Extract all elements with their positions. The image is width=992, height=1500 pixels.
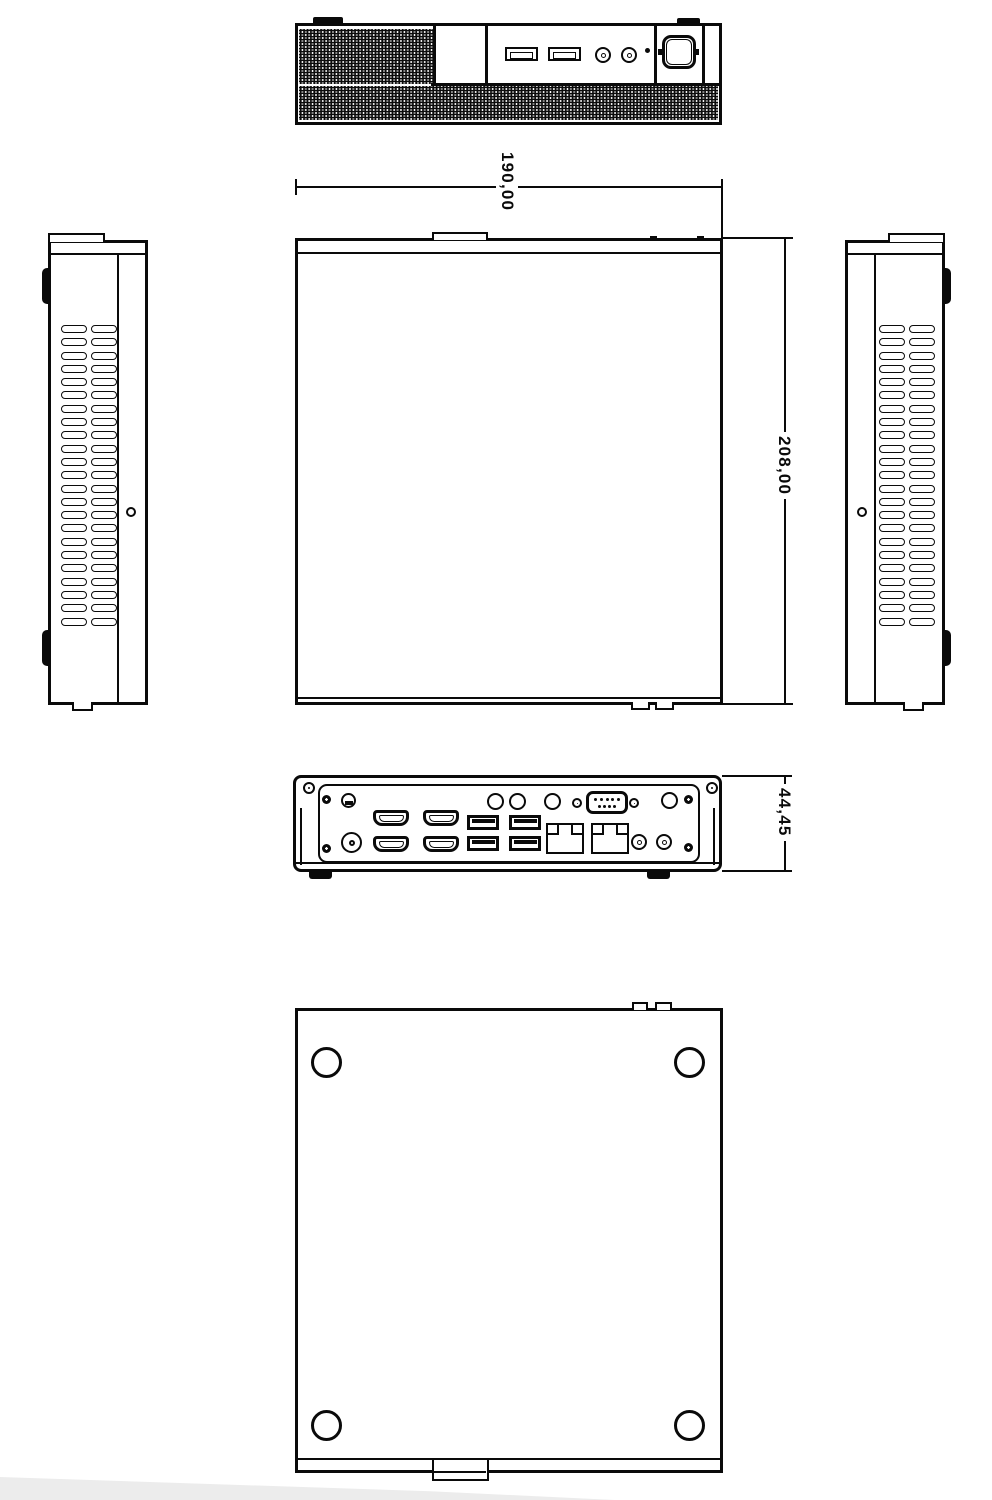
bottom-view xyxy=(295,1008,723,1473)
vent-slot xyxy=(61,618,87,626)
lock-slot xyxy=(341,793,356,808)
extension-line xyxy=(721,186,723,238)
vent-slot xyxy=(61,325,87,333)
inner-wall-line xyxy=(300,808,302,865)
vent-slot xyxy=(909,511,935,519)
front-divider xyxy=(654,26,657,84)
vent-slot xyxy=(91,591,117,599)
power-button xyxy=(662,35,696,69)
vent-slot xyxy=(91,325,117,333)
vent-slot xyxy=(91,524,117,532)
vent-slot xyxy=(61,578,87,586)
vent-slot xyxy=(909,365,935,373)
vent-slot xyxy=(879,471,905,479)
vent-slot xyxy=(61,365,87,373)
vent-slot xyxy=(61,391,87,399)
vent-slot xyxy=(61,551,87,559)
mount-hole xyxy=(674,1410,705,1441)
mount-hole xyxy=(311,1410,342,1441)
vent-slot xyxy=(61,485,87,493)
rj45-lan-port xyxy=(546,823,584,854)
vent-slot xyxy=(91,538,117,546)
mount-hole xyxy=(674,1047,705,1078)
vent-slot xyxy=(909,405,935,413)
vent-slot xyxy=(909,352,935,360)
plate-screw xyxy=(684,795,693,804)
db9-pin xyxy=(598,805,601,808)
front-blank-panel xyxy=(433,26,488,84)
antenna-hole xyxy=(544,793,561,810)
vent-slot xyxy=(879,578,905,586)
vent-slot xyxy=(91,431,117,439)
dimension-tick xyxy=(295,179,297,195)
vent-slot xyxy=(909,431,935,439)
depth-label: 208,00 xyxy=(773,432,795,499)
vent-slot xyxy=(91,338,117,346)
vent-slot xyxy=(61,458,87,466)
plate-screw xyxy=(322,844,331,853)
base-plate-line xyxy=(298,1458,720,1460)
vent-slot xyxy=(91,578,117,586)
edge-clip xyxy=(42,630,49,666)
vent-slot xyxy=(909,591,935,599)
vent-slot xyxy=(879,458,905,466)
front-vent-grid-left xyxy=(299,29,433,84)
vent-slot xyxy=(879,405,905,413)
vent-slot xyxy=(91,618,117,626)
vent-slot xyxy=(91,391,117,399)
vent-slot xyxy=(879,564,905,572)
db9-pin-row xyxy=(594,805,620,808)
vent-slot xyxy=(61,538,87,546)
db9-pin xyxy=(603,805,606,808)
vent-slot xyxy=(91,564,117,572)
panel-divider xyxy=(117,253,119,702)
right-side-view xyxy=(845,240,945,705)
edge-clip xyxy=(944,268,951,304)
vent-slot xyxy=(879,538,905,546)
vent-slot xyxy=(909,538,935,546)
top-tab-left xyxy=(313,17,343,23)
vent-slot xyxy=(879,418,905,426)
vent-slot xyxy=(61,524,87,532)
usb-port xyxy=(548,47,581,61)
vent-slot xyxy=(91,418,117,426)
rj45-lan-port xyxy=(591,823,629,854)
rubber-foot xyxy=(309,871,332,879)
usb-port xyxy=(467,815,499,830)
mount-hole xyxy=(311,1047,342,1078)
db9-pin xyxy=(613,805,616,808)
vent-slot xyxy=(91,511,117,519)
vent-slot xyxy=(91,498,117,506)
chassis-screw xyxy=(706,782,718,794)
db9-pin-row xyxy=(594,798,620,801)
vent-slot xyxy=(61,338,87,346)
vent-slot xyxy=(879,325,905,333)
vent-slot xyxy=(879,618,905,626)
cap-line xyxy=(51,253,145,255)
panel-divider xyxy=(874,253,876,702)
vent-slot xyxy=(91,485,117,493)
usb-port xyxy=(505,47,538,61)
front-divider xyxy=(702,26,705,84)
vent-slot xyxy=(91,365,117,373)
vent-slot xyxy=(909,604,935,612)
chassis-screw xyxy=(303,782,315,794)
top-cap-line xyxy=(298,252,720,254)
hdmi-port xyxy=(373,836,409,852)
vent-slot xyxy=(61,431,87,439)
vent-slot xyxy=(61,418,87,426)
vent-slot xyxy=(61,471,87,479)
vent-slot xyxy=(61,445,87,453)
usb-port xyxy=(509,836,541,851)
vent-slot xyxy=(909,445,935,453)
vent-slot xyxy=(879,551,905,559)
vent-slot xyxy=(909,498,935,506)
dimension-width: 190,00 xyxy=(295,148,723,238)
mini-pc-dimension-drawing: 190,00 208,00 xyxy=(0,0,992,1500)
vent-slot xyxy=(909,485,935,493)
cap-line xyxy=(848,253,942,255)
usb-port xyxy=(509,815,541,830)
db9-jackscrew xyxy=(572,798,582,808)
vent-slot xyxy=(909,418,935,426)
vent-slot xyxy=(879,352,905,360)
vent-slot xyxy=(61,352,87,360)
top-edge-tab xyxy=(655,1002,672,1010)
top-edge-mark xyxy=(650,236,657,239)
vent-slot xyxy=(879,524,905,532)
bottom-foot-tab xyxy=(903,702,924,711)
vent-slot xyxy=(91,551,117,559)
mic-jack xyxy=(595,47,611,63)
top-edge-tab xyxy=(632,1002,648,1010)
vent-slot xyxy=(879,591,905,599)
vent-slot xyxy=(91,445,117,453)
vent-slot xyxy=(91,352,117,360)
latch-line xyxy=(434,1471,486,1473)
edge-clip xyxy=(944,630,951,666)
dimension-tick xyxy=(777,703,793,705)
vent-slot xyxy=(909,578,935,586)
plate-screw xyxy=(322,795,331,804)
audio-jack xyxy=(631,834,647,850)
headphone-jack xyxy=(621,47,637,63)
antenna-hole xyxy=(487,793,504,810)
audio-jack xyxy=(656,834,672,850)
db9-pin xyxy=(611,798,614,801)
top-tab-right xyxy=(677,18,700,23)
hdmi-port xyxy=(373,810,409,826)
top-view xyxy=(295,238,723,705)
vent-slot xyxy=(909,325,935,333)
top-edge-tab xyxy=(432,232,488,240)
power-led xyxy=(645,48,650,53)
com-db9-port xyxy=(586,791,628,814)
vent-slot xyxy=(91,604,117,612)
height-label: 44,45 xyxy=(773,784,795,841)
vent-slot xyxy=(879,485,905,493)
side-vent-grid xyxy=(879,325,935,626)
vent-slot xyxy=(879,445,905,453)
top-edge-mark xyxy=(697,236,704,239)
hdmi-port xyxy=(423,836,459,852)
db9-pin xyxy=(594,798,597,801)
antenna-hole xyxy=(509,793,526,810)
vent-slot xyxy=(61,405,87,413)
vent-slot xyxy=(879,365,905,373)
vent-slot xyxy=(91,471,117,479)
width-label: 190,00 xyxy=(496,148,518,215)
rubber-foot xyxy=(647,871,670,879)
vent-slot xyxy=(61,564,87,572)
dimension-tick xyxy=(777,237,793,239)
vent-slot xyxy=(909,524,935,532)
dimension-tick xyxy=(777,870,792,872)
vent-slot xyxy=(61,604,87,612)
button-nub-right xyxy=(695,49,699,55)
vent-slot xyxy=(61,591,87,599)
vent-slot xyxy=(879,378,905,386)
page-corner-watermark xyxy=(0,1477,615,1500)
vent-slot xyxy=(909,458,935,466)
vent-slot xyxy=(61,378,87,386)
edge-clip xyxy=(42,268,49,304)
vent-slot xyxy=(91,405,117,413)
vent-slot xyxy=(879,498,905,506)
vent-slot xyxy=(879,604,905,612)
vent-slot xyxy=(61,511,87,519)
front-view xyxy=(295,23,722,125)
hdmi-port xyxy=(423,810,459,826)
dimension-depth: 208,00 xyxy=(723,236,790,707)
db9-jackscrew xyxy=(629,798,639,808)
vent-slot xyxy=(909,391,935,399)
db9-pin xyxy=(606,798,609,801)
rear-view xyxy=(293,775,722,872)
vent-slot xyxy=(91,458,117,466)
vent-slot xyxy=(909,378,935,386)
vent-slot xyxy=(879,431,905,439)
dimension-height: 44,45 xyxy=(722,775,790,872)
side-vent-grid xyxy=(61,325,117,626)
vent-slot xyxy=(909,564,935,572)
plate-screw xyxy=(684,843,693,852)
dimension-tick xyxy=(777,775,792,777)
bottom-latch-tab xyxy=(432,1458,489,1481)
screw-hole xyxy=(857,507,867,517)
bottom-inner-line xyxy=(298,697,720,699)
vent-slot xyxy=(61,498,87,506)
vent-slot xyxy=(879,511,905,519)
cap-step-tab xyxy=(888,233,945,242)
vent-slot xyxy=(879,338,905,346)
front-vent-strip xyxy=(299,86,718,120)
antenna-hole xyxy=(661,792,678,809)
vent-slot xyxy=(879,391,905,399)
vent-slot xyxy=(91,378,117,386)
screw-hole xyxy=(126,507,136,517)
db9-pin xyxy=(608,805,611,808)
vent-slot xyxy=(909,338,935,346)
bottom-edge-tab xyxy=(631,702,650,710)
vent-slot xyxy=(909,551,935,559)
db9-pin xyxy=(600,798,603,801)
dc-power-jack xyxy=(341,832,362,853)
cap-step-tab xyxy=(48,233,105,242)
io-plate xyxy=(318,784,700,863)
vent-slot xyxy=(909,471,935,479)
vent-slot xyxy=(909,618,935,626)
inner-wall-line xyxy=(713,808,715,865)
left-side-view xyxy=(48,240,148,705)
bottom-foot-tab xyxy=(72,702,93,711)
db9-pin xyxy=(617,798,620,801)
usb-port xyxy=(467,836,499,851)
bottom-edge-tab xyxy=(655,702,674,710)
